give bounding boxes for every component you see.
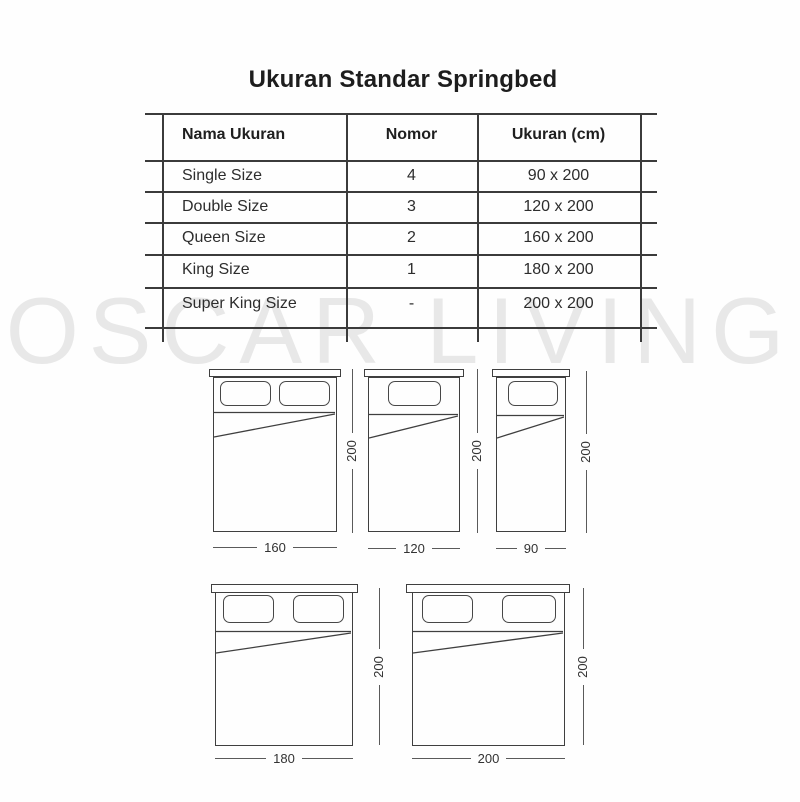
table-rule-horizontal [145,254,657,256]
dimension-line [302,758,353,759]
cell-name: Double Size [182,196,342,218]
dimension-line [412,758,471,759]
dimension-line [379,685,380,746]
content-layer: Ukuran Standar Springbed Nama Ukuran Nom… [0,0,800,802]
page-title: Ukuran Standar Springbed [3,66,800,94]
headboard [492,369,570,377]
pillow [508,381,558,406]
cell-ukuran: 200 x 200 [477,293,640,315]
cell-nomor: 4 [346,165,477,187]
width-dimension: 160 [213,540,337,555]
height-dimension: 200 [459,369,495,533]
bed-body [215,592,353,746]
dimension-line [432,548,460,549]
height-dimension: 200 [565,588,601,745]
sheet-fold-lines [216,630,351,656]
dimension-line [379,588,380,649]
width-dimension: 120 [368,541,460,556]
width-dimension: 180 [215,751,353,766]
cell-name: King Size [182,259,342,281]
table-rule-horizontal [145,191,657,193]
height-dimension-label: 200 [372,649,386,685]
pillow [279,381,330,406]
height-dimension: 200 [361,588,397,745]
table-rule-horizontal [145,287,657,289]
table-rule-vertical [640,113,642,342]
height-dimension-label: 200 [470,433,484,469]
cell-ukuran: 90 x 200 [477,165,640,187]
cell-nomor: 3 [346,196,477,218]
width-dimension-label: 90 [517,541,545,556]
sheet-fold-lines [497,414,564,440]
sheet-fold-lines [214,411,335,439]
bed-diagram-180 [211,584,358,746]
cell-nomor: 2 [346,227,477,249]
cell-nomor: 1 [346,259,477,281]
dimension-line [293,547,337,548]
dimension-line [586,371,587,434]
dimension-line [496,548,517,549]
dimension-line [586,470,587,533]
height-dimension-label: 200 [579,434,593,470]
bed-diagram-200 [406,584,570,746]
dimension-line [545,548,566,549]
width-dimension: 90 [496,541,566,556]
pillow [293,595,344,623]
width-dimension: 200 [412,751,565,766]
height-dimension: 200 [568,371,604,533]
headboard [364,369,464,377]
pillow [388,381,441,406]
height-dimension-label: 200 [345,433,359,469]
dimension-line [352,469,353,533]
headboard [209,369,341,377]
bed-body [368,377,460,532]
dimension-line [368,548,396,549]
table-rule-horizontal [145,327,657,329]
dimension-line [477,469,478,533]
cell-name: Queen Size [182,227,342,249]
dimension-line [352,369,353,433]
cell-ukuran: 120 x 200 [477,196,640,218]
width-dimension-label: 200 [471,751,507,766]
dimension-line [477,369,478,433]
dimension-line [215,758,266,759]
bed-diagram-120 [364,369,464,532]
sheet-fold-lines [413,630,563,656]
dimension-line [506,758,565,759]
bed-body [213,377,337,532]
table-rule-vertical [162,113,164,342]
pillow [223,595,274,623]
cell-ukuran: 180 x 200 [477,259,640,281]
width-dimension-label: 160 [257,540,293,555]
table-header-ukuran-cm: Ukuran (cm) [477,124,640,146]
bed-body [412,592,565,746]
dimension-line [583,588,584,649]
table-rule-horizontal [145,113,657,115]
dimension-line [583,685,584,746]
cell-name: Super King Size [182,293,342,315]
width-dimension-label: 180 [266,751,302,766]
table-rule-horizontal [145,222,657,224]
dimension-line [213,547,257,548]
width-dimension-label: 120 [396,541,432,556]
height-dimension-label: 200 [576,649,590,685]
cell-name: Single Size [182,165,342,187]
bed-body [496,377,566,532]
cell-nomor: - [346,293,477,315]
table-rule-horizontal [145,160,657,162]
pillow [422,595,473,623]
table-header-nomor: Nomor [346,124,477,146]
pillow [502,595,556,623]
infographic-page: OSCAR LIVING Ukuran Standar Springbed Na… [0,0,800,802]
table-header-nama-ukuran: Nama Ukuran [182,124,342,146]
pillow [220,381,271,406]
bed-diagram-160 [209,369,341,532]
sheet-fold-lines [369,413,458,441]
cell-ukuran: 160 x 200 [477,227,640,249]
bed-diagram-90 [492,369,570,532]
